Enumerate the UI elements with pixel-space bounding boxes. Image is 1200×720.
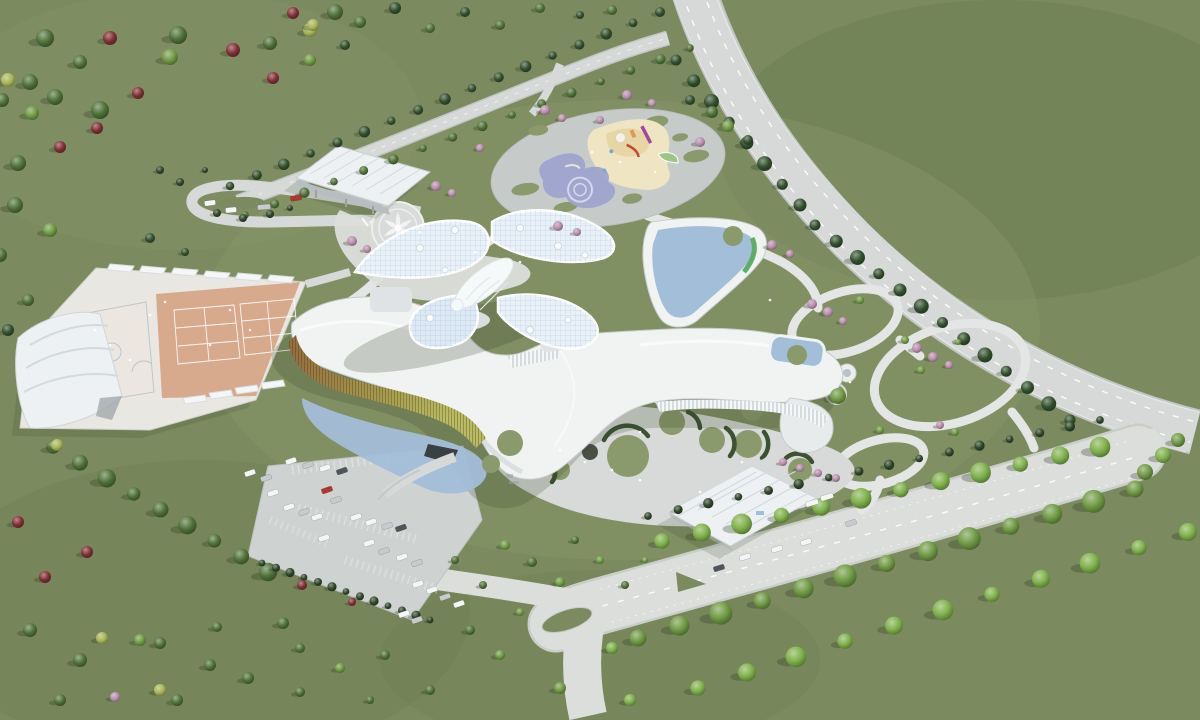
person-dot — [94, 329, 97, 332]
terrace-planter — [482, 455, 500, 473]
person-dot — [619, 161, 622, 164]
person-dot — [611, 469, 614, 472]
person-dot — [769, 299, 772, 302]
person-dot — [474, 251, 477, 254]
roof-opening — [723, 226, 743, 246]
boulevard-south-arm — [582, 610, 588, 716]
base-volume — [370, 287, 412, 312]
person-dot — [519, 261, 522, 264]
person-dot — [419, 231, 422, 234]
reception-desk — [756, 511, 764, 515]
aerial-render — [0, 0, 1200, 720]
person-dot — [129, 359, 132, 362]
person-dot — [591, 151, 594, 154]
person-dot — [639, 431, 642, 434]
person-dot — [559, 449, 562, 452]
campus-scene — [0, 0, 1200, 720]
car — [225, 207, 236, 213]
person-dot — [741, 461, 744, 464]
terrace-planter — [497, 430, 523, 456]
east-patio — [768, 334, 825, 368]
person-dot — [209, 344, 212, 347]
person-dot — [109, 344, 112, 347]
car — [257, 204, 270, 210]
person-dot — [699, 491, 702, 494]
person-dot — [849, 381, 852, 384]
person-dot — [249, 329, 252, 332]
person-dot — [639, 479, 642, 482]
person-dot — [654, 171, 657, 174]
person-dot — [929, 301, 932, 304]
person-dot — [164, 301, 167, 304]
person-dot — [584, 461, 587, 464]
person-dot — [149, 314, 152, 317]
person-dot — [229, 309, 232, 312]
